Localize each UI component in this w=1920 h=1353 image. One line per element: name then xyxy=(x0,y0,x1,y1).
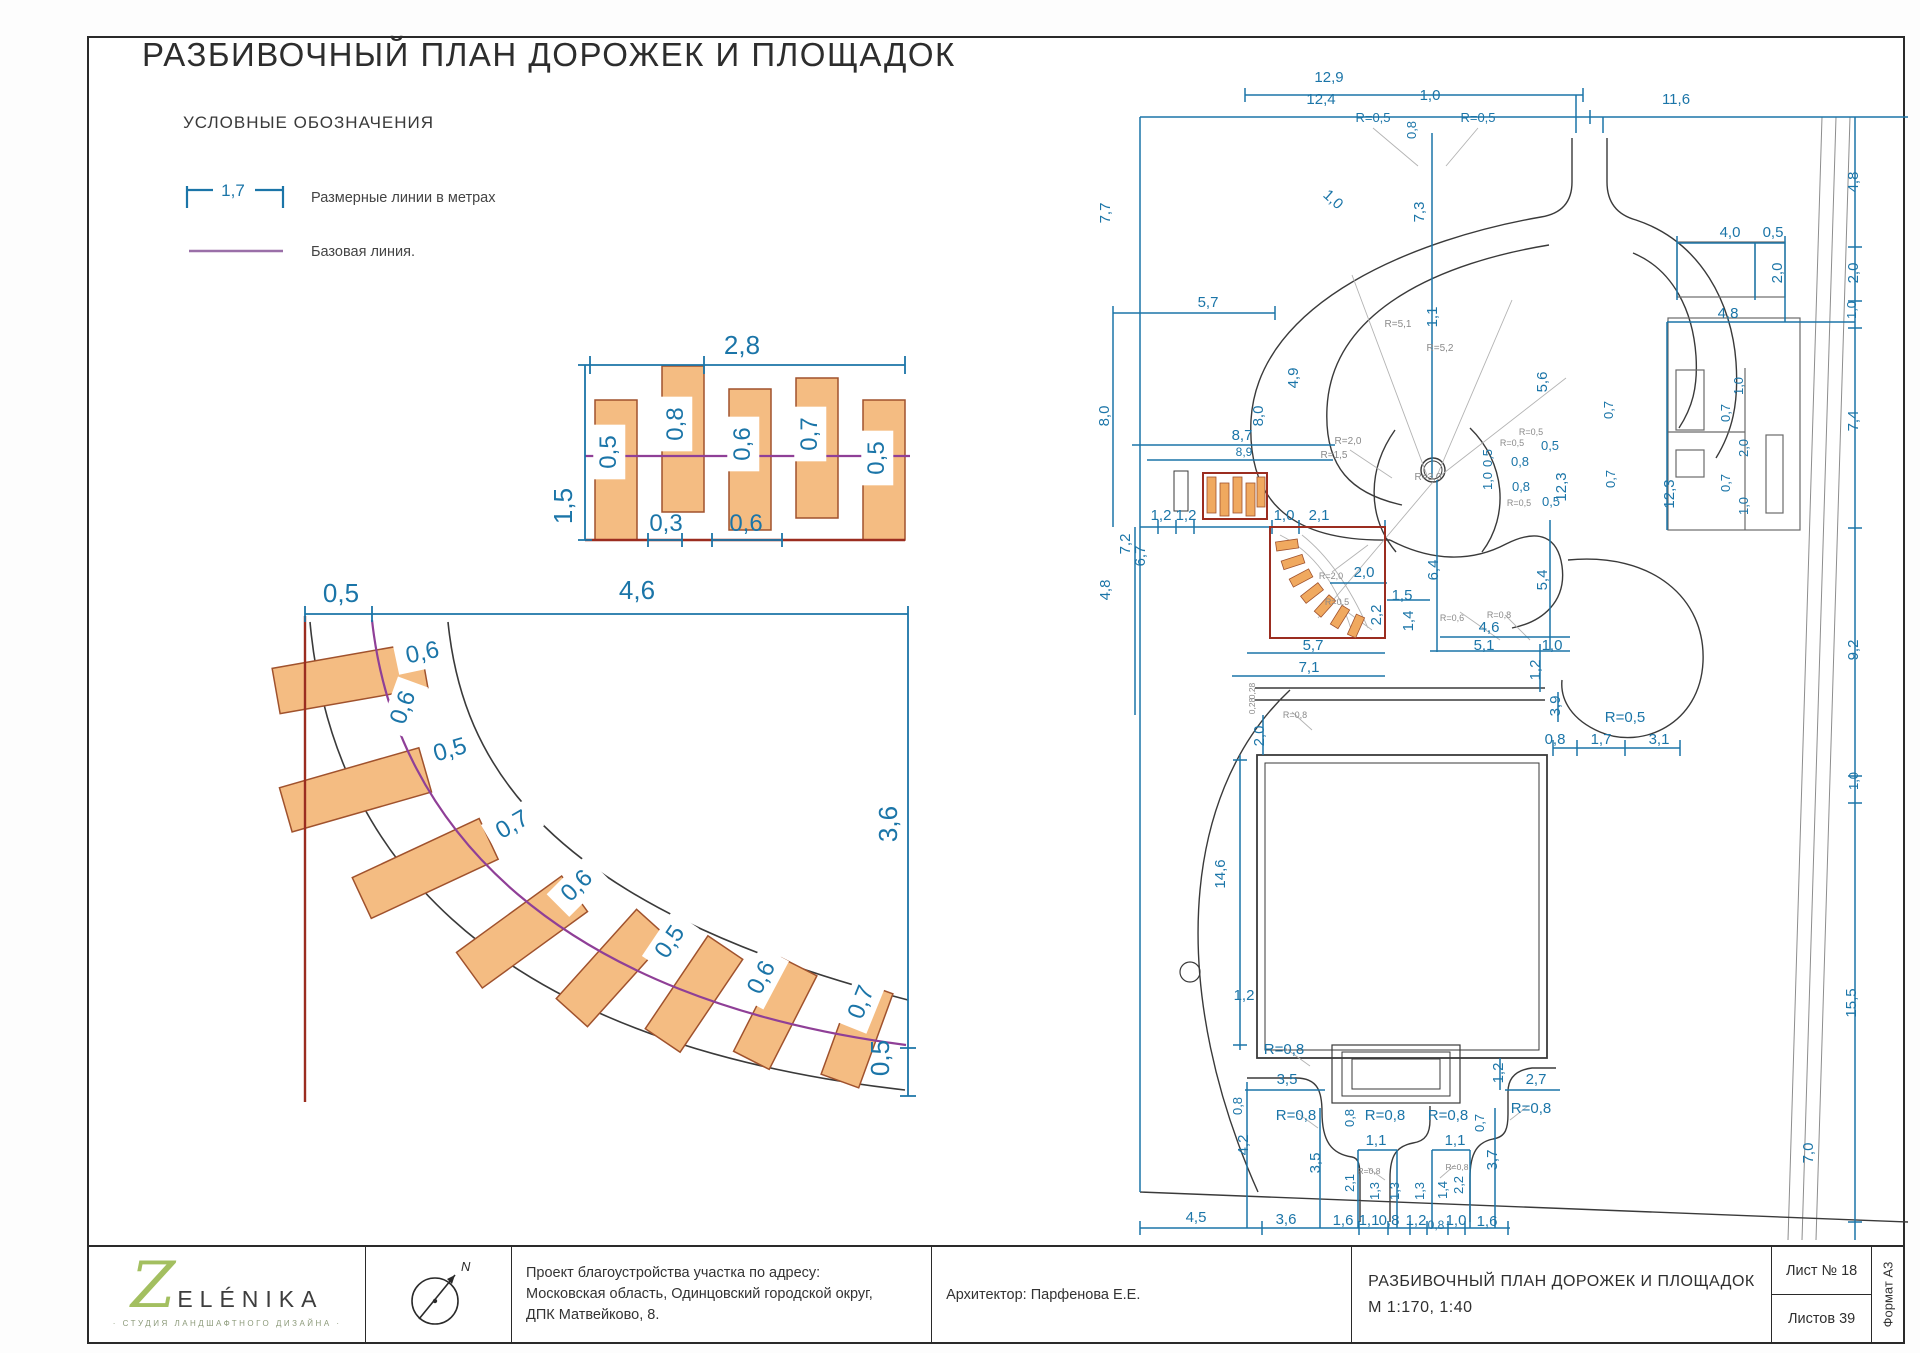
dimension-text: R=0,8 xyxy=(1428,1107,1468,1124)
dimension-text: 6,4 xyxy=(1425,560,1442,581)
dimension-text: R=5,1 xyxy=(1385,319,1412,330)
drawing-canvas: 0,50,80,60,70,52,81,50,30,6 0,60,60,50,7… xyxy=(0,0,1920,1353)
dimension-text: 5,4 xyxy=(1534,570,1551,591)
dimension-text: 0,5 xyxy=(863,441,890,474)
stepping-stone xyxy=(1301,583,1324,604)
dimension-label: 1,5 xyxy=(548,488,578,524)
dimension-text: 0,5 xyxy=(595,435,622,468)
north-label: N xyxy=(461,1259,471,1274)
dimension-label: 7,3 xyxy=(1411,202,1428,223)
dimension-label: 8,0 xyxy=(1096,406,1113,427)
dimension-text: R=0,5 xyxy=(1605,709,1645,726)
dimension-label: R=0,6 xyxy=(1440,613,1464,623)
format-cell: Формат А3 xyxy=(1872,1247,1903,1342)
sheet-number-cell: Лист № 18 Листов 39 xyxy=(1772,1247,1872,1342)
dimension-label: 1,2 xyxy=(1527,660,1544,681)
logo-z-mark: Z xyxy=(131,1261,175,1312)
dimension-text: 1,0 xyxy=(1542,637,1563,654)
dimension-text: 0,5 xyxy=(323,578,359,608)
dimension-text: 0,6 xyxy=(729,510,762,537)
house-outline xyxy=(1257,755,1547,1058)
dimension-text: 0,8 xyxy=(1511,454,1529,469)
dimension-label: R=0,5 xyxy=(1355,110,1390,125)
dimension-text: 2,0 xyxy=(1845,263,1862,284)
dimension-text: 7,3 xyxy=(1411,202,1428,223)
dimension-text: 3,1 xyxy=(1649,731,1670,748)
dimension-text: 5,7 xyxy=(1303,637,1324,654)
dimension-label: R=1,5 xyxy=(1321,450,1348,461)
dimension-text: R=0,5 xyxy=(1500,438,1524,448)
project-line: ДПК Матвейково, 8. xyxy=(526,1305,917,1326)
dimension-text: 11,6 xyxy=(1662,91,1690,108)
dimension-text: 1,1 xyxy=(1366,1132,1387,1149)
dimension-label: 0,28 xyxy=(1247,697,1257,714)
dimension-label: 1,3 xyxy=(1412,1182,1427,1200)
dimension-label: 0,7 xyxy=(1601,401,1616,419)
dimension-text: 0,7 xyxy=(1601,401,1616,419)
dimension-text: 3,5 xyxy=(1307,1153,1324,1174)
leader-lines xyxy=(1280,128,1566,1180)
dimension-text: 12,4 xyxy=(1306,91,1335,108)
room xyxy=(1766,435,1783,513)
dimension-label: 4,6 xyxy=(619,575,655,605)
dimension-label: 2,0 xyxy=(1736,439,1751,457)
dimension-label: 14,6 xyxy=(1212,859,1229,888)
dimension-label: 1,4 xyxy=(1400,611,1417,632)
drawing-name: РАЗБИВОЧНЫЙ ПЛАН ДОРОЖЕК И ПЛОЩАДОК xyxy=(1368,1273,1755,1291)
dimension-text: 1,3 xyxy=(1367,1182,1382,1200)
dimension-text: R=2,0 xyxy=(1319,571,1343,581)
dimension-label: 1,0 xyxy=(1846,772,1861,790)
dimension-label: 2,1 xyxy=(1309,507,1330,524)
dimension-label: 1,0 xyxy=(1274,507,1295,524)
dimension-text: 3,6 xyxy=(1276,1211,1297,1228)
dimension-text: 8,7 xyxy=(1232,427,1253,444)
dimension-text: R=0,8 xyxy=(1365,1107,1405,1124)
dimension-text: 0,5 xyxy=(1542,494,1560,509)
dimension-label: 0,5 xyxy=(419,728,480,774)
dimension-text: 5,1 xyxy=(1474,637,1495,654)
dimension-text: 5,7 xyxy=(1198,294,1219,311)
dimension-lines xyxy=(1113,88,1908,1240)
dimension-label: R=0,8 xyxy=(1428,1107,1468,1124)
dimension-label: 0,5 xyxy=(861,431,893,486)
dimension-label: R=0,5 xyxy=(1507,498,1531,508)
dimension-label: 0,8 xyxy=(1428,1218,1445,1232)
dimension-label: 1,0 xyxy=(1731,377,1746,395)
dimension-text: 2,8 xyxy=(724,330,760,360)
dimension-label: 7,7 xyxy=(1097,203,1114,224)
dimension-text: 12,9 xyxy=(1314,69,1343,86)
project-line: Проект благоустройства участка по адресу… xyxy=(526,1263,917,1284)
drawing-name-cell: РАЗБИВОЧНЫЙ ПЛАН ДОРОЖЕК И ПЛОЩАДОК М 1:… xyxy=(1352,1247,1772,1342)
dimension-label: 3,7 xyxy=(1484,1150,1501,1171)
dimension-label: 0,8 xyxy=(1511,454,1529,469)
dimension-label: 0,28 xyxy=(1247,682,1257,699)
dimension-text: 15,5 xyxy=(1843,988,1860,1017)
dimension-label: 8,7 xyxy=(1232,427,1253,444)
dimension-text: 1,2 xyxy=(1234,987,1255,1004)
round-feature-small xyxy=(1180,962,1200,982)
dimension-text: R=0,8 xyxy=(1358,1166,1381,1176)
dimension-text: 1,2 xyxy=(1490,1063,1507,1084)
dimension-label: R=0,5 xyxy=(1519,427,1543,437)
dimension-label: 4,9 xyxy=(1285,368,1302,389)
dimension-text: 8,0 xyxy=(1096,406,1113,427)
dimension-label: 2,0 xyxy=(1769,263,1786,284)
dimension-text: 0,5 xyxy=(865,1040,895,1076)
dimension-text: 3,7 xyxy=(1484,1150,1501,1171)
dimension-label: R=0,5 xyxy=(1325,597,1349,607)
dimension-text: 0,3 xyxy=(649,510,682,537)
dimension-label: 5,7 xyxy=(1198,294,1219,311)
porch-step xyxy=(1352,1059,1440,1089)
dimension-label: 2,7 xyxy=(1526,1071,1547,1088)
dimension-label: 4,8 xyxy=(1097,580,1114,601)
dimension-text: 8,9 xyxy=(1236,445,1253,459)
dimension-text: 1,0 xyxy=(1420,87,1441,104)
dimension-label: 9,2 xyxy=(1845,640,1862,661)
dimension-label: 0,7 xyxy=(1718,404,1733,422)
dimension-label: 1,3 xyxy=(1367,1182,1382,1200)
dimension-text: R=0,8 xyxy=(1446,1162,1469,1172)
dimension-label: 7,1 xyxy=(1299,659,1320,676)
stepping-stone xyxy=(1275,539,1298,551)
dimension-label: 2,0 xyxy=(1845,263,1862,284)
dimension-text: 1,1 xyxy=(1445,1132,1466,1149)
sheets-total: Листов 39 xyxy=(1772,1295,1871,1342)
dimension-label: 2,2 xyxy=(1368,605,1385,626)
dimension-text: 1,2 xyxy=(1406,1212,1427,1229)
dimension-text: 2,2 xyxy=(1451,1176,1466,1194)
dimension-text: 1,0 xyxy=(1846,772,1861,790)
dimension-text: 4,6 xyxy=(619,575,655,605)
plank-outline xyxy=(1174,471,1188,511)
dimension-text: 1,5 xyxy=(1392,587,1413,604)
dimension-text: 7,0 xyxy=(1800,1143,1817,1164)
stepping-stone xyxy=(1207,477,1216,513)
dimension-label: 0,7 xyxy=(1718,474,1733,492)
dimension-label: 0,3 xyxy=(649,510,682,537)
dimension-label: 12,3 xyxy=(1661,479,1678,508)
stepping-stone xyxy=(1246,483,1255,516)
dimension-label: 5,1 xyxy=(1474,637,1495,654)
dimension-label: R=0,8 xyxy=(1511,1100,1551,1117)
dimension-label: R=0,8 xyxy=(1276,1107,1316,1124)
dimension-label: 4,8 xyxy=(1845,172,1862,193)
dimension-text: 6,7 xyxy=(1132,546,1149,567)
dimension-text: 0,8 xyxy=(1342,1109,1357,1127)
dimension-label: R=2,0 xyxy=(1319,571,1343,581)
drawing-sheet: РАЗБИВОЧНЫЙ ПЛАН ДОРОЖЕК И ПЛОЩАДОК УСЛО… xyxy=(0,0,1920,1353)
dimension-text: R=0,6 xyxy=(1440,613,1464,623)
dimension-label: 1,2 xyxy=(1490,1063,1507,1084)
dimension-label: 0,8 xyxy=(1512,479,1530,494)
dimension-label: 0,7 xyxy=(1472,1114,1487,1132)
dimension-text: 7,7 xyxy=(1097,203,1114,224)
dimension-text: 4,8 xyxy=(1097,580,1114,601)
dimension-text: 0,7 xyxy=(1718,404,1733,422)
dimension-text: 4,5 xyxy=(1186,1209,1207,1226)
dimension-text: R=0,5 xyxy=(1519,427,1543,437)
dimension-text: 9,2 xyxy=(1845,640,1862,661)
dimension-label: 4,5 xyxy=(1186,1209,1207,1226)
dimension-text: 1,0 xyxy=(1274,507,1295,524)
dimension-text: 0,8 xyxy=(662,407,689,440)
dimension-text: 1,0 xyxy=(1736,497,1751,515)
architect-name: Архитектор: Парфенова Е.Е. xyxy=(946,1287,1140,1303)
dimension-text: R=5,2 xyxy=(1427,343,1454,354)
dimension-label: 1,1 xyxy=(1424,307,1441,328)
dimension-text: 1,2 xyxy=(1527,660,1544,681)
dimension-label: 3,9 xyxy=(1547,696,1564,717)
dimension-label: 1,6 xyxy=(1477,1213,1498,1230)
dimension-text: 1,4 xyxy=(1400,611,1417,632)
dimension-label: 1,7 xyxy=(1591,731,1612,748)
dimension-text: 5,6 xyxy=(1534,372,1551,393)
dimension-label: 0,8 xyxy=(1404,121,1419,139)
dimension-label: 0,7 xyxy=(1603,470,1618,488)
room xyxy=(1676,450,1704,477)
format-label: Формат А3 xyxy=(1880,1262,1895,1328)
dimension-label: 5,7 xyxy=(1303,637,1324,654)
dimension-text: 4,9 xyxy=(1285,368,1302,389)
dimension-label: 2,0 xyxy=(1354,564,1375,581)
dimension-text: 2,1 xyxy=(1309,507,1330,524)
dimension-text: R=0,8 xyxy=(1283,710,1307,720)
dimension-label: 1,1 xyxy=(1359,1212,1380,1229)
dimension-label: 4,2 xyxy=(1235,1135,1252,1156)
dimension-text: 0,8 xyxy=(1545,731,1566,748)
dimension-text: 3,5 xyxy=(1277,1071,1298,1088)
dimension-text: 2,1 xyxy=(1342,1174,1357,1192)
dimension-text: 0,6 xyxy=(729,427,756,460)
stepping-stone xyxy=(1257,477,1265,507)
dimension-text: R=0,5 xyxy=(1507,498,1531,508)
dimension-text: 1,5 xyxy=(548,488,578,524)
dimension-label: 6,4 xyxy=(1425,560,1442,581)
dimension-text: 2,0 xyxy=(1736,439,1751,457)
dimension-label: 1,2 xyxy=(1406,1212,1427,1229)
dimension-text: 1,3 xyxy=(1387,1182,1402,1200)
dimension-label: 0,5 xyxy=(593,425,625,480)
dimension-text: 1,1 xyxy=(1359,1212,1380,1229)
dimension-label: 12,9 xyxy=(1314,69,1343,86)
dimension-text: R=0,5 xyxy=(1460,110,1495,125)
dimension-text: R=0,5 xyxy=(1325,597,1349,607)
dimension-text: 0,8 xyxy=(1428,1218,1445,1232)
stepping-stone xyxy=(1220,483,1229,516)
dimension-label: 5,6 xyxy=(1534,372,1551,393)
dimension-text: 4,6 xyxy=(1479,619,1500,636)
dimension-text: 2,0 xyxy=(1354,564,1375,581)
dimension-label: 0,5 xyxy=(323,578,359,608)
north-arrow-icon: N xyxy=(399,1253,479,1337)
dimension-text: R=0,5 xyxy=(1355,110,1390,125)
detail-curve-labels: 0,60,60,50,70,60,50,60,70,54,63,60,5 xyxy=(323,575,903,1076)
dimension-label: 1,4 xyxy=(1435,1181,1450,1199)
dimension-text: 2,0 xyxy=(1769,263,1786,284)
dimension-label: 2,1 xyxy=(1342,1174,1357,1192)
house-inner xyxy=(1265,763,1539,1050)
dimension-label: 3,5 xyxy=(1277,1071,1298,1088)
dimension-text: 4,0 xyxy=(1720,224,1741,241)
dimension-label: 1,0 xyxy=(1844,301,1859,319)
dimension-label: 1,0 xyxy=(1320,186,1347,213)
dimension-text: 2,7 xyxy=(1526,1071,1547,1088)
dimension-text: 0,28 xyxy=(1247,697,1257,714)
dimension-label: 0,5 xyxy=(1541,438,1559,453)
dimension-label: 0,6 xyxy=(393,632,453,675)
path-geometry xyxy=(1140,138,1908,1222)
dimension-text: 1,6 xyxy=(1333,1212,1354,1229)
detail-stepping-row: 0,50,80,60,70,52,81,50,30,6 xyxy=(548,330,910,547)
dimension-label: 12,4 xyxy=(1306,91,1335,108)
dimension-text: 0,8 xyxy=(1512,479,1530,494)
dimension-label: 5,4 xyxy=(1534,570,1551,591)
dimension-label: 0,8 xyxy=(660,397,692,452)
dimension-label: 2,0 xyxy=(1251,726,1268,747)
stepping-stone xyxy=(279,748,431,832)
dimension-text: 0,5 xyxy=(1541,438,1559,453)
dimension-text: 1,1 xyxy=(1424,307,1441,328)
dimension-label: 0,6 xyxy=(727,417,759,472)
dimension-text: 2,0 xyxy=(1251,726,1268,747)
dimension-label: 0,5 xyxy=(1763,224,1784,241)
dimension-label: 8,0 xyxy=(1250,406,1267,427)
dimension-text: 2,2 xyxy=(1368,605,1385,626)
dimension-label: 1,5 xyxy=(1392,587,1413,604)
title-block: Z ELÉNIKA · СТУДИЯ ЛАНДШАФТНОГО ДИЗАЙНА … xyxy=(87,1245,1905,1344)
dimension-label: 11,6 xyxy=(1662,91,1690,108)
dimension-label: 1,0 xyxy=(1420,87,1441,104)
dimension-text: 4,8 xyxy=(1845,172,1862,193)
dimension-label: 3,6 xyxy=(873,806,903,842)
dimension-label: 4,0 xyxy=(1720,224,1741,241)
dimension-label: R=5,2 xyxy=(1427,343,1454,354)
dimension-text: R=0,8 xyxy=(1264,1041,1304,1058)
dimension-text: 1,0 xyxy=(1844,301,1859,319)
dimension-label: R=2,0 xyxy=(1335,436,1362,447)
dimension-text: 8,0 xyxy=(1250,406,1267,427)
project-line: Московская область, Одинцовский городско… xyxy=(526,1284,917,1305)
dimension-label: 1,0 xyxy=(1542,637,1563,654)
logo-cell: Z ELÉNIKA · СТУДИЯ ЛАНДШАФТНОГО ДИЗАЙНА … xyxy=(89,1247,366,1342)
dimension-text: 7,1 xyxy=(1299,659,1320,676)
sheet-number: Лист № 18 xyxy=(1772,1247,1871,1295)
dimension-label: R=5,1 xyxy=(1385,319,1412,330)
dimension-label: 2,2 xyxy=(1451,1176,1466,1194)
dimension-label: 3,6 xyxy=(1276,1211,1297,1228)
detail-curved-path: 0,60,60,50,70,60,50,60,70,54,63,60,5 xyxy=(272,575,916,1102)
room xyxy=(1676,370,1704,430)
dimension-label: 7,0 xyxy=(1800,1143,1817,1164)
stepping-stone xyxy=(556,909,668,1026)
dimension-text: 4,8 xyxy=(1718,305,1739,322)
dimension-label: 0,8 xyxy=(1342,1109,1357,1127)
dimension-label: 0,5 xyxy=(1480,449,1495,467)
dimension-label: 1,0 xyxy=(1446,1212,1467,1229)
dimension-label: 1,0 xyxy=(1480,472,1495,490)
dimension-label: 3,5 xyxy=(1307,1153,1324,1174)
dimension-label: R=0,5 xyxy=(1500,438,1524,448)
dimension-text: 0,5 xyxy=(1480,449,1495,467)
dimension-text: 1,2 xyxy=(1151,507,1172,524)
dimension-text: 1,7 xyxy=(1591,731,1612,748)
dimension-text: 0,7 xyxy=(796,417,823,450)
dimension-text: 0,28 xyxy=(1247,682,1257,699)
dimension-label: R=3,0 xyxy=(1415,472,1442,483)
dimension-text: 1,0 xyxy=(1480,472,1495,490)
dimension-text: 0,5 xyxy=(1763,224,1784,241)
drawing-scale: М 1:170, 1:40 xyxy=(1368,1299,1755,1317)
architect-cell: Архитектор: Парфенова Е.Е. xyxy=(932,1247,1352,1342)
project-cell: Проект благоустройства участка по адресу… xyxy=(512,1247,932,1342)
dimension-label: 3,1 xyxy=(1649,731,1670,748)
dimension-text: 7,4 xyxy=(1845,411,1862,432)
dimension-label: 0,8 xyxy=(1379,1212,1400,1229)
dimension-text: R=3,0 xyxy=(1415,472,1442,483)
dimension-label: 1,3 xyxy=(1387,1182,1402,1200)
dimension-text: 3,9 xyxy=(1547,696,1564,717)
dimension-label: 15,5 xyxy=(1843,988,1860,1017)
dimension-text: 3,6 xyxy=(873,806,903,842)
fence-lines xyxy=(1788,117,1850,1240)
dimension-label: 1,1 xyxy=(1445,1132,1466,1149)
dimension-label: 0,5 xyxy=(1542,494,1560,509)
dimension-text: 0,7 xyxy=(1718,474,1733,492)
dimension-text: 14,6 xyxy=(1212,859,1229,888)
dimension-text: R=1,5 xyxy=(1321,450,1348,461)
dimension-text: 12,3 xyxy=(1661,479,1678,508)
logo-name: ELÉNIKA xyxy=(177,1286,323,1313)
stepping-stone xyxy=(1289,569,1313,587)
site-plan: 12,912,41,011,6R=0,5R=0,50,87,71,07,34,8… xyxy=(1096,69,1908,1240)
dimension-label: 1,2 xyxy=(1176,507,1197,524)
dimension-label: 4,6 xyxy=(1479,619,1500,636)
dimension-text: 1,6 xyxy=(1477,1213,1498,1230)
dimension-label: 0,8 xyxy=(1230,1097,1245,1115)
dimension-text: 1,2 xyxy=(1176,507,1197,524)
dimension-label: 1,2 xyxy=(1151,507,1172,524)
north-arrow-cell: N xyxy=(366,1247,512,1342)
dimension-label: R=0,8 xyxy=(1264,1041,1304,1058)
dimension-text: 1,4 xyxy=(1435,1181,1450,1199)
company-logo: Z ELÉNIKA xyxy=(131,1261,324,1313)
dimension-text: 1,0 xyxy=(1446,1212,1467,1229)
dimension-label: R=0,8 xyxy=(1446,1162,1469,1172)
dimension-text: 0,8 xyxy=(1404,121,1419,139)
dimension-label: R=0,8 xyxy=(1358,1166,1381,1176)
dimension-text: R=0,8 xyxy=(1511,1100,1551,1117)
dimension-text: 1,0 xyxy=(1731,377,1746,395)
dimension-label: 0,7 xyxy=(794,407,826,462)
dimension-label: 8,9 xyxy=(1236,445,1253,459)
dimension-label: 2,8 xyxy=(724,330,760,360)
logo-tagline: · СТУДИЯ ЛАНДШАФТНОГО ДИЗАЙНА · xyxy=(113,1319,342,1328)
porch xyxy=(1332,1045,1460,1103)
stepping-stone xyxy=(1281,554,1305,569)
building-outline xyxy=(1668,318,1800,530)
dimension-text: 1,0 xyxy=(1320,186,1347,213)
dimension-label: R=0,8 xyxy=(1365,1107,1405,1124)
dimension-label: 1,1 xyxy=(1366,1132,1387,1149)
dimension-label: 7,4 xyxy=(1845,411,1862,432)
dimension-text: R=0,8 xyxy=(1276,1107,1316,1124)
dimension-label: R=0,5 xyxy=(1460,110,1495,125)
dimension-label: 6,7 xyxy=(1132,546,1149,567)
dimension-label: R=0,5 xyxy=(1605,709,1645,726)
